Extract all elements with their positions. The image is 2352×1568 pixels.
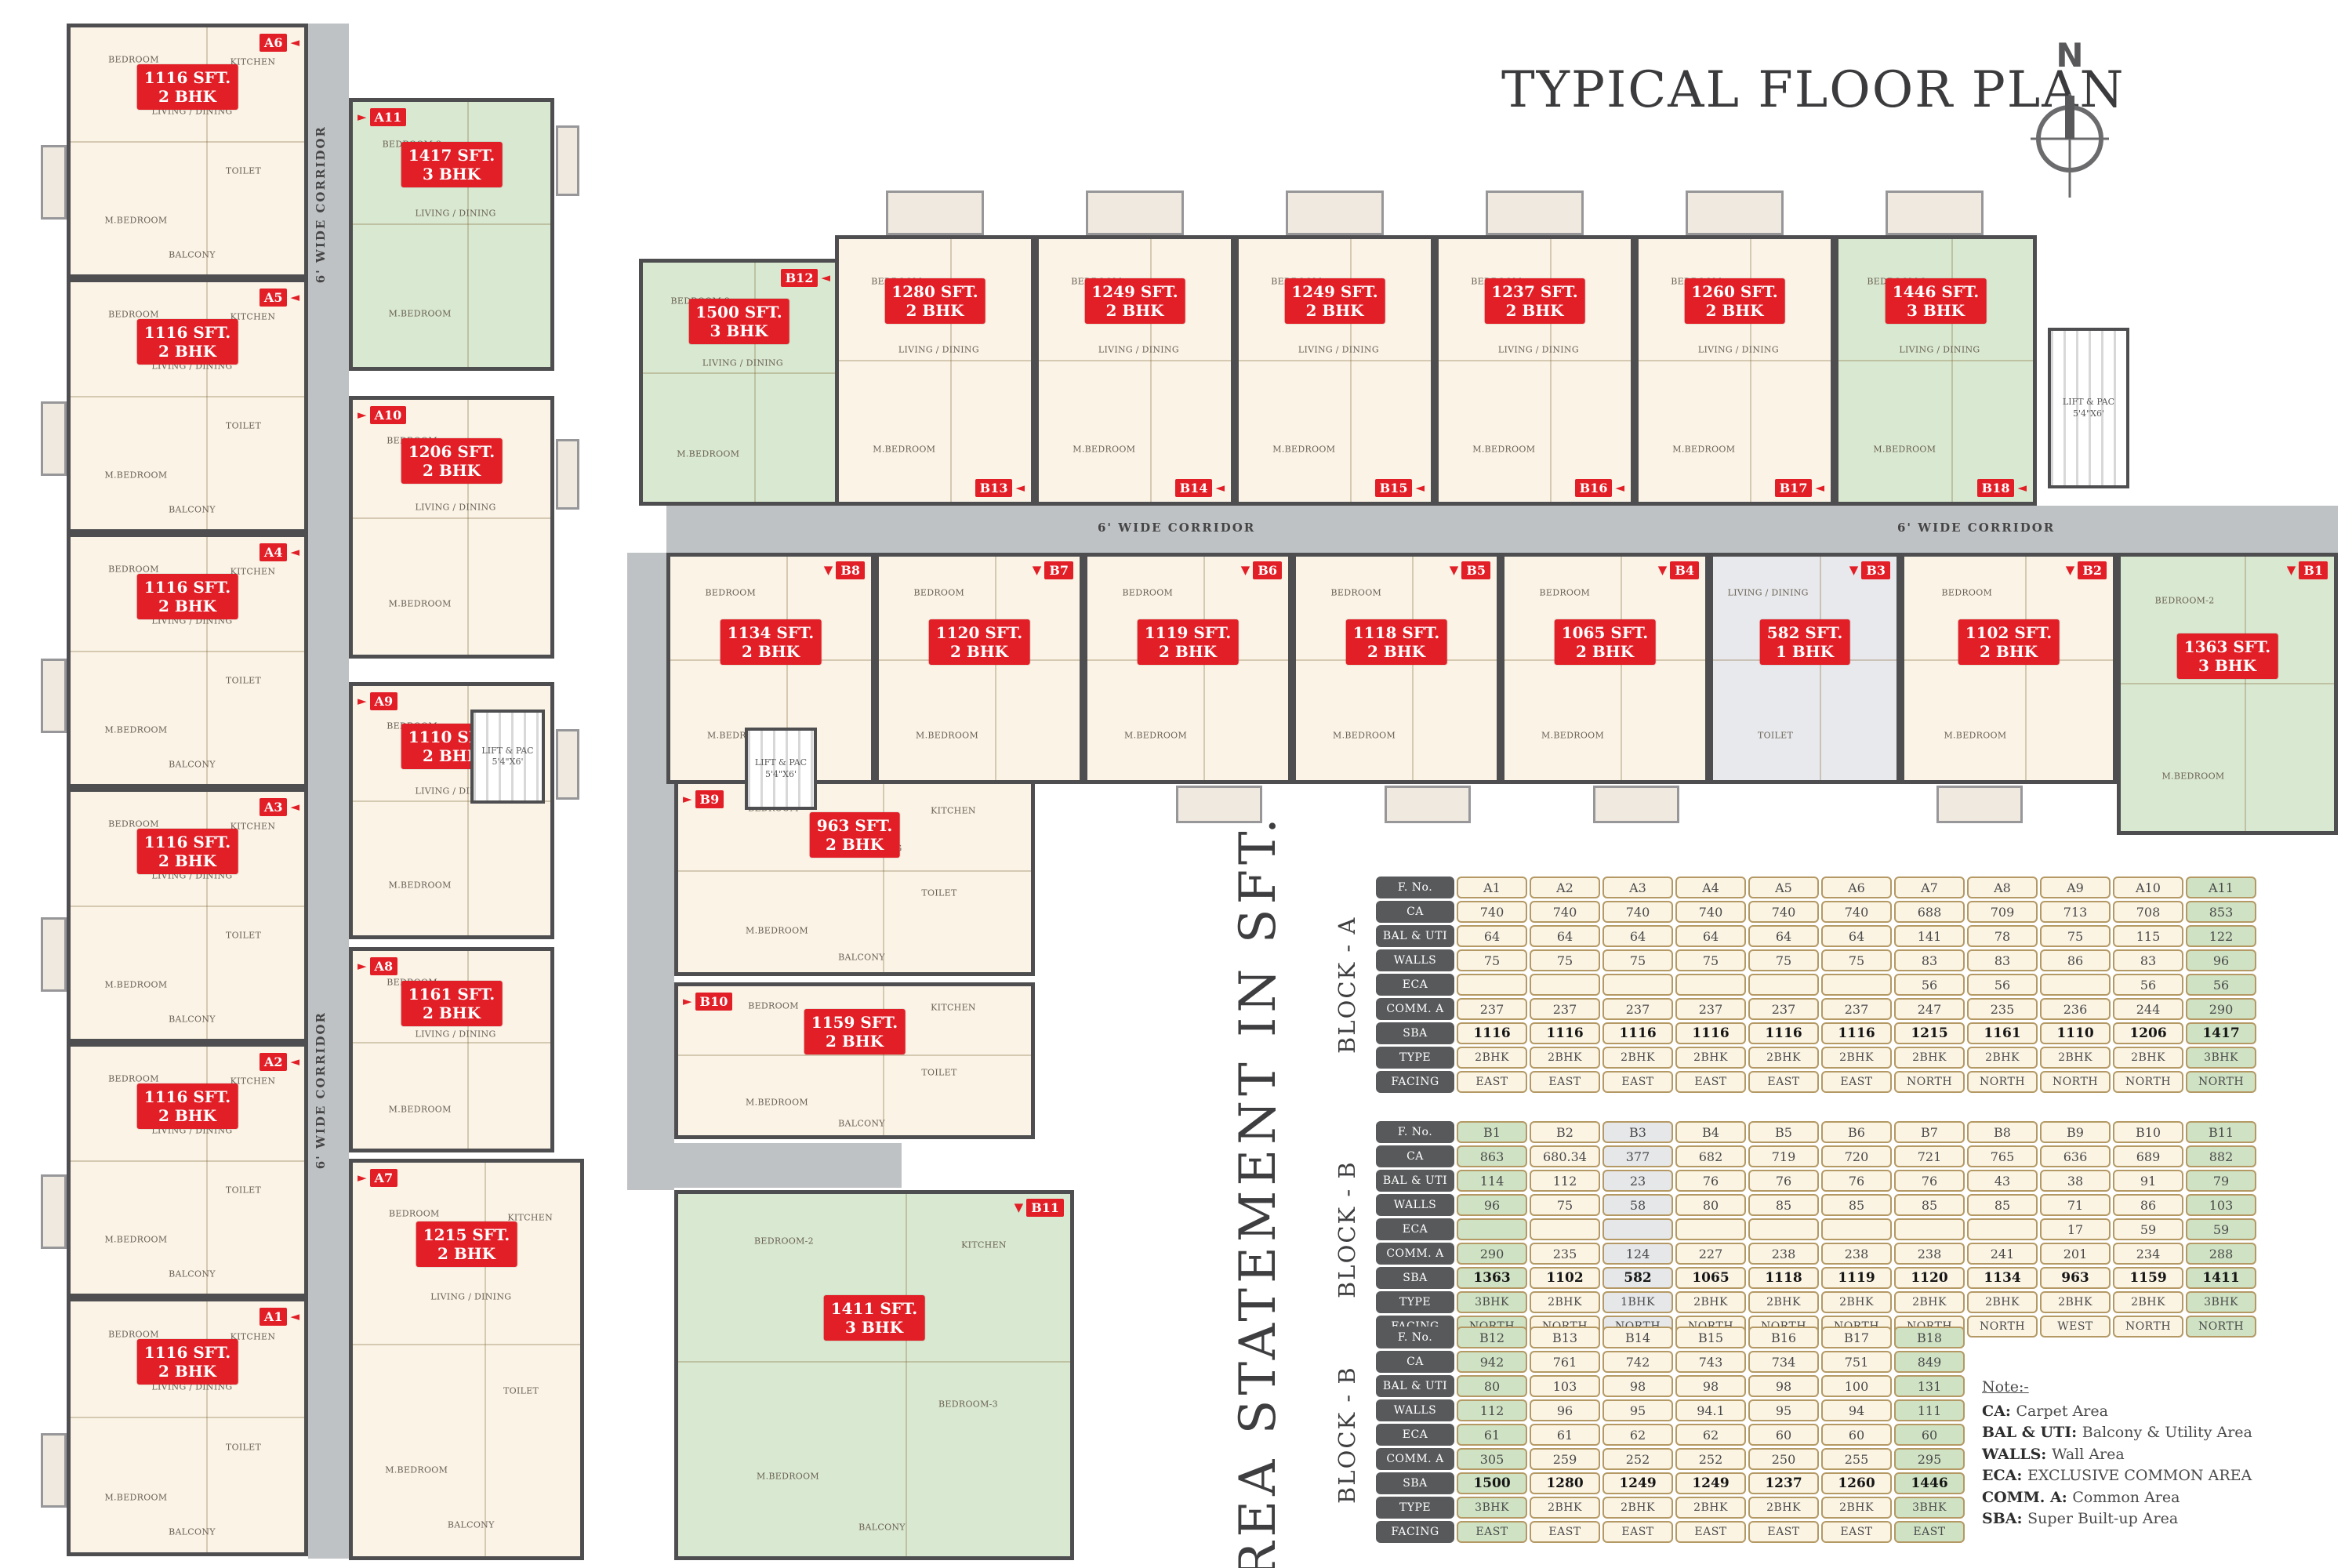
table-cell: 234	[2113, 1243, 2183, 1265]
table-cell: 1159	[2113, 1267, 2183, 1289]
unit-B10: 1159 SFT.2 BHK►B10BEDROOMLIVING / DINING…	[674, 982, 1035, 1139]
table-cell: 80	[1457, 1375, 1527, 1397]
table-cell: 86	[2040, 949, 2111, 971]
room-label: M.BEDROOM	[2161, 771, 2224, 782]
unit-id-chip: A11	[370, 108, 407, 126]
unit-area-badge: 1159 SFT.2 BHK	[804, 1009, 906, 1054]
table-cell: 85	[1821, 1194, 1892, 1216]
room-label: M.BEDROOM	[385, 1465, 448, 1475]
entry-arrow-icon: ◄	[1615, 482, 1624, 494]
unit-marker: B17◄	[1775, 479, 1824, 497]
room-label: KITCHEN	[961, 1240, 1007, 1250]
unit-id-chip: B15	[1375, 479, 1413, 497]
table-cell: 124	[1602, 1243, 1673, 1265]
unit-area-badge: 1119 SFT.2 BHK	[1138, 619, 1239, 665]
unit-marker: A2◄	[260, 1053, 299, 1071]
table-cell: 2BHK	[1821, 1497, 1892, 1519]
table-row: SBA1363110258210651118111911201134963115…	[1376, 1267, 2259, 1289]
table-cell: 247	[1894, 998, 1965, 1020]
table-cell: 201	[2040, 1243, 2111, 1265]
table-cell: EAST	[1602, 1521, 1673, 1543]
table-cell: EAST	[1675, 1521, 1746, 1543]
room-label: LIVING / DINING	[415, 208, 495, 218]
unit-area-badge: 1161 SFT.2 BHK	[401, 981, 503, 1026]
entry-arrow-icon: ▼	[2287, 564, 2296, 576]
table-cell: 1500	[1457, 1472, 1527, 1494]
unit-marker: B13◄	[975, 479, 1025, 497]
area-statement-heading: AREA STATEMENT IN SFT.	[1219, 866, 1298, 1568]
table-cell: 2BHK	[1894, 1047, 1965, 1069]
row-label: CA	[1376, 1351, 1454, 1373]
table-cell: B7	[1894, 1121, 1965, 1143]
unit-marker: ▼B8	[824, 561, 865, 579]
table-cell: B6	[1821, 1121, 1892, 1143]
row-label: FACING	[1376, 1521, 1454, 1543]
room-label: M.BEDROOM	[746, 1098, 808, 1108]
unit-marker: B14◄	[1175, 479, 1225, 497]
unit-marker: ►A8	[358, 957, 397, 975]
table-cell: 709	[1967, 901, 2038, 923]
room-label: LIVING / DINING	[1899, 344, 1980, 354]
unit-marker: ►A11	[358, 108, 406, 126]
table-cell: 75	[2040, 925, 2111, 947]
table-cell	[1675, 1218, 1746, 1240]
unit-B13: 1280 SFT.2 BHKB13◄BEDROOMLIVING / DINING…	[835, 235, 1035, 506]
table-cell: 582	[1602, 1267, 1673, 1289]
entry-arrow-icon: ►	[358, 111, 367, 123]
row-label: WALLS	[1376, 949, 1454, 971]
table-cell: 75	[1530, 1194, 1600, 1216]
table-cell: B8	[1967, 1121, 2038, 1143]
room-label: M.BEDROOM	[1873, 445, 1936, 455]
table-cell	[1821, 974, 1892, 996]
table-cell: 708	[2113, 901, 2183, 923]
corridor-label: 6' WIDE CORRIDOR	[314, 1011, 328, 1169]
room-label: TOILET	[226, 420, 261, 430]
row-label: CA	[1376, 1145, 1454, 1167]
table-cell: 636	[2040, 1145, 2111, 1167]
room-label: BEDROOM-2	[2155, 596, 2215, 606]
table-cell: 64	[1457, 925, 1527, 947]
entry-arrow-icon: ◄	[2017, 482, 2027, 494]
table-cell: NORTH	[1967, 1316, 2038, 1338]
table-cell: 75	[1821, 949, 1892, 971]
table-cell: 56	[1967, 974, 2038, 996]
table-cell: A5	[1748, 877, 1819, 898]
table-cell: EAST	[1821, 1521, 1892, 1543]
room-label: BEDROOM	[748, 1000, 799, 1011]
unit-area-badge: 1116 SFT.2 BHK	[137, 319, 238, 365]
unit-area-badge: 1116 SFT.2 BHK	[137, 1083, 238, 1129]
table-cell: 2BHK	[2113, 1047, 2183, 1069]
note-item: SBA: Super Built-up Area	[1982, 1508, 2252, 1530]
table-cell	[1457, 974, 1527, 996]
table-cell	[1748, 974, 1819, 996]
table-cell: 1116	[1821, 1022, 1892, 1044]
table-cell: 2BHK	[1602, 1047, 1673, 1069]
table-cell: 83	[2113, 949, 2183, 971]
table-cell: 111	[1894, 1399, 1965, 1421]
table-cell: EAST	[1457, 1071, 1527, 1093]
table-cell: 1411	[2186, 1267, 2256, 1289]
room-label: M.BEDROOM	[873, 445, 935, 455]
table-cell: 61	[1457, 1424, 1527, 1446]
table-cell: EAST	[1894, 1521, 1965, 1543]
table-cell: 141	[1894, 925, 1965, 947]
block-label-2: BLOCK - B	[1331, 1327, 1363, 1543]
unit-area-badge: 1215 SFT.2 BHK	[416, 1221, 517, 1267]
corridor-label: 6' WIDE CORRIDOR	[1897, 521, 2055, 535]
note-items: CA: Carpet AreaBAL & UTI: Balcony & Util…	[1982, 1401, 2252, 1530]
unit-area-badge: 1260 SFT.2 BHK	[1684, 278, 1785, 324]
table-cell: B17	[1821, 1327, 1892, 1348]
unit-B3: 582 SFT.1 BHK▼B3LIVING / DININGKITCHENTO…	[1709, 553, 1900, 784]
table-cell: 103	[1530, 1375, 1600, 1397]
table-cell: 2BHK	[2040, 1047, 2111, 1069]
entry-arrow-icon: ◄	[290, 546, 299, 558]
unit-B7: 1120 SFT.2 BHK▼B7BEDROOMLIVING / DININGM…	[875, 553, 1083, 784]
table-cell: 688	[1894, 901, 1965, 923]
table-cell	[1748, 1218, 1819, 1240]
table-row: CA942761742743734751849	[1376, 1351, 1967, 1373]
unit-id-chip: A5	[260, 289, 288, 307]
room-label: BALCONY	[838, 952, 885, 962]
table-cell: 2BHK	[1748, 1497, 1819, 1519]
entry-arrow-icon: ►	[358, 695, 367, 707]
room-label: M.BEDROOM	[1472, 445, 1535, 455]
unit-marker: ▼B2	[2066, 561, 2107, 579]
table-cell: 3BHK	[2186, 1047, 2256, 1069]
unit-area-badge: 1206 SFT.2 BHK	[401, 438, 503, 484]
table-cell: 1116	[1748, 1022, 1819, 1044]
unit-A11: 1417 SFT.3 BHK►A11BEDROOM-2LIVING / DINI…	[349, 98, 554, 371]
table-cell: 114	[1457, 1170, 1527, 1192]
note-desc: Super Built-up Area	[2027, 1510, 2178, 1527]
note-item: BAL & UTI: Balcony & Utility Area	[1982, 1422, 2252, 1444]
unit-area-badge: 1446 SFT.3 BHK	[1886, 278, 1987, 324]
note-term: WALLS:	[1982, 1446, 2052, 1463]
room-label: LIVING / DINING	[415, 1029, 495, 1039]
table-cell: 79	[2186, 1170, 2256, 1192]
room-label: TOILET	[226, 165, 261, 176]
room-label: BEDROOM	[108, 1073, 159, 1083]
table-cell: 244	[2113, 998, 2183, 1020]
table-cell: 83	[1967, 949, 2038, 971]
unit-id-chip: B11	[1026, 1199, 1064, 1217]
unit-id-chip: B13	[975, 479, 1013, 497]
table-cell: 1116	[1675, 1022, 1746, 1044]
table-cell: 61	[1530, 1424, 1600, 1446]
entry-arrow-icon: ◄	[290, 37, 299, 49]
room-label: M.BEDROOM	[757, 1472, 819, 1482]
balcony	[1593, 786, 1679, 823]
table-cell: WEST	[2040, 1316, 2111, 1338]
unit-id-chip: B16	[1575, 479, 1613, 497]
row-label: ECA	[1376, 1424, 1454, 1446]
table-cell: 290	[2186, 998, 2256, 1020]
balcony	[886, 191, 984, 235]
row-label: BAL & UTI	[1376, 1170, 1454, 1192]
unit-area-badge: 1237 SFT.2 BHK	[1484, 278, 1585, 324]
table-cell: 3BHK	[1457, 1497, 1527, 1519]
table-cell: 863	[1457, 1145, 1527, 1167]
table-cell: 719	[1748, 1145, 1819, 1167]
table-cell: 1102	[1530, 1267, 1600, 1289]
table-cell: A8	[1967, 877, 2038, 898]
table-cell: 80	[1675, 1194, 1746, 1216]
table-cell: B12	[1457, 1327, 1527, 1348]
table-cell: A6	[1821, 877, 1892, 898]
floor-plan-sheet: 6' WIDE CORRIDOR6' WIDE CORRIDOR6' WIDE …	[0, 0, 2352, 1568]
table-cell: 853	[2186, 901, 2256, 923]
table-cell: EAST	[1530, 1521, 1600, 1543]
unit-id-chip: A7	[370, 1169, 398, 1187]
table-row: F. No.A1A2A3A4A5A6A7A8A9A10A11	[1376, 877, 2259, 898]
unit-id-chip: B3	[1861, 561, 1890, 579]
table-cell: 96	[1457, 1194, 1527, 1216]
table-cell: 1417	[2186, 1022, 2256, 1044]
table-cell	[1457, 1218, 1527, 1240]
note-item: WALLS: Wall Area	[1982, 1444, 2252, 1466]
room-label: BEDROOM	[1122, 587, 1173, 597]
table-cell: 252	[1602, 1448, 1673, 1470]
room-label: BEDROOM	[1941, 587, 1992, 597]
balcony	[41, 145, 67, 220]
unit-B18: 1446 SFT.3 BHKB18◄BEDROOM-2LIVING / DINI…	[1835, 235, 2037, 506]
room-label: BALCONY	[169, 759, 216, 769]
entry-arrow-icon: ▼	[2066, 564, 2075, 576]
table-cell: 761	[1530, 1351, 1600, 1373]
table-row: WALLS96755880858585857186103	[1376, 1194, 2259, 1216]
unit-area-badge: 1411 SFT.3 BHK	[824, 1295, 925, 1341]
unit-B11: 1411 SFT.3 BHK▼B11BEDROOM-2LIVING / DINI…	[674, 1190, 1074, 1560]
unit-id-chip: B12	[781, 269, 818, 287]
table-cell: 689	[2113, 1145, 2183, 1167]
unit-marker: B15◄	[1375, 479, 1425, 497]
table-row: BAL & UTI114112237676767643389179	[1376, 1170, 2259, 1192]
table-cell: B3	[1602, 1121, 1673, 1143]
area-table-0: F. No.A1A2A3A4A5A6A7A8A9A10A11CA74074074…	[1376, 877, 2259, 1095]
table-cell: 237	[1675, 998, 1746, 1020]
room-label: M.BEDROOM	[389, 599, 452, 609]
area-table-1: F. No.B1B2B3B4B5B6B7B8B9B10B11CA863680.3…	[1376, 1121, 2259, 1340]
lift-stairs: LIFT & PAC5'4"X6'	[745, 728, 817, 810]
room-label: M.BEDROOM	[746, 926, 808, 936]
table-cell: 2BHK	[1967, 1291, 2038, 1313]
row-label: BAL & UTI	[1376, 1375, 1454, 1397]
unit-A10: 1206 SFT.2 BHK►A10BEDROOMLIVING / DINING…	[349, 396, 554, 659]
unit-A4: 1116 SFT.2 BHKA4◄BEDROOMLIVING / DININGK…	[67, 533, 308, 788]
room-label: M.BEDROOM	[677, 449, 739, 459]
balcony	[41, 917, 67, 992]
unit-marker: ▼B11	[1014, 1199, 1064, 1217]
table-cell: B15	[1675, 1327, 1746, 1348]
unit-B2: 1102 SFT.2 BHK▼B2BEDROOMLIVING / DININGM…	[1900, 553, 2117, 784]
table-cell: 377	[1602, 1145, 1673, 1167]
table-cell: 76	[1675, 1170, 1746, 1192]
table-cell: 2BHK	[1530, 1497, 1600, 1519]
table-row: WALLS7575757575758383868396	[1376, 949, 2259, 971]
note-legend: Note:- CA: Carpet AreaBAL & UTI: Balcony…	[1982, 1377, 2252, 1530]
table-cell: 1118	[1748, 1267, 1819, 1289]
unit-marker: ►A7	[358, 1169, 397, 1187]
table-cell: 100	[1821, 1375, 1892, 1397]
room-label: BALCONY	[448, 1519, 495, 1530]
note-desc: Balcony & Utility Area	[2082, 1424, 2252, 1441]
table-cell: 112	[1457, 1399, 1527, 1421]
table-cell: 94.1	[1675, 1399, 1746, 1421]
table-cell: EAST	[1457, 1521, 1527, 1543]
table-cell: EAST	[1748, 1071, 1819, 1093]
room-label: BALCONY	[169, 249, 216, 260]
north-compass: N	[2027, 39, 2113, 209]
table-cell: 64	[1602, 925, 1673, 947]
table-cell: 98	[1748, 1375, 1819, 1397]
room-label: BEDROOM	[705, 587, 756, 597]
table-cell: 3BHK	[2186, 1291, 2256, 1313]
table-cell: 56	[2186, 974, 2256, 996]
unit-id-chip: A1	[260, 1308, 288, 1326]
unit-id-chip: B5	[1461, 561, 1490, 579]
room-label: M.BEDROOM	[389, 880, 452, 891]
unit-area-badge: 1417 SFT.3 BHK	[401, 142, 503, 187]
room-label: LIVING / DINING	[1698, 344, 1779, 354]
row-label: TYPE	[1376, 1497, 1454, 1519]
table-cell: 2BHK	[1602, 1497, 1673, 1519]
table-cell: 740	[1748, 901, 1819, 923]
note-desc: Wall Area	[2052, 1446, 2125, 1463]
entry-arrow-icon: ◄	[1815, 482, 1824, 494]
room-label: BALCONY	[169, 1269, 216, 1279]
note-desc: Carpet Area	[2016, 1403, 2108, 1420]
unit-area-badge: 1120 SFT.2 BHK	[929, 619, 1030, 665]
room-label: TOILET	[921, 888, 956, 898]
note-term: BAL & UTI:	[1982, 1424, 2082, 1441]
unit-B1: 1363 SFT.3 BHK▼B1BEDROOM-2LIVING / DININ…	[2117, 553, 2338, 835]
unit-id-chip: B2	[2078, 561, 2107, 579]
table-cell: NORTH	[2186, 1316, 2256, 1338]
table-cell: 23	[1602, 1170, 1673, 1192]
table-cell: NORTH	[2113, 1071, 2183, 1093]
table-cell: 237	[1457, 998, 1527, 1020]
table-cell: 98	[1602, 1375, 1673, 1397]
unit-B5: 1118 SFT.2 BHK▼B5BEDROOMLIVING / DININGM…	[1292, 553, 1501, 784]
table-cell: 3BHK	[1457, 1291, 1527, 1313]
north-label: N	[2027, 39, 2113, 72]
note-item: CA: Carpet Area	[1982, 1401, 2252, 1423]
table-cell: B14	[1602, 1327, 1673, 1348]
table-row: ECA175959	[1376, 1218, 2259, 1240]
unit-area-badge: 1280 SFT.2 BHK	[884, 278, 985, 324]
table-cell: 882	[2186, 1145, 2256, 1167]
table-cell: 2BHK	[1967, 1047, 2038, 1069]
table-cell: 963	[2040, 1267, 2111, 1289]
row-label: COMM. A	[1376, 998, 1454, 1020]
table-cell: 743	[1675, 1351, 1746, 1373]
unit-B16: 1237 SFT.2 BHKB16◄BEDROOMLIVING / DINING…	[1435, 235, 1635, 506]
entry-arrow-icon: ▼	[824, 564, 833, 576]
unit-id-chip: B14	[1175, 479, 1213, 497]
balcony	[41, 659, 67, 733]
unit-marker: A6◄	[260, 34, 299, 52]
row-label: TYPE	[1376, 1291, 1454, 1313]
table-row: WALLS112969594.19594111	[1376, 1399, 1967, 1421]
table-cell: 38	[2040, 1170, 2111, 1192]
entry-arrow-icon: ▼	[1014, 1202, 1024, 1214]
table-cell: EAST	[1748, 1521, 1819, 1543]
room-label: BEDROOM	[108, 818, 159, 829]
table-cell: 1260	[1821, 1472, 1892, 1494]
table-cell: EAST	[1675, 1071, 1746, 1093]
balcony	[1686, 191, 1784, 235]
table-cell: 237	[1602, 998, 1673, 1020]
unit-area-badge: 1102 SFT.2 BHK	[1958, 619, 2060, 665]
table-cell: 238	[1821, 1243, 1892, 1265]
table-cell: 75	[1602, 949, 1673, 971]
unit-id-chip: B10	[695, 993, 733, 1011]
table-cell: 682	[1675, 1145, 1746, 1167]
room-label: LIVING / DINING	[1098, 344, 1179, 354]
table-cell: 62	[1675, 1424, 1746, 1446]
row-label: SBA	[1376, 1267, 1454, 1289]
table-cell: 237	[1530, 998, 1600, 1020]
room-label: M.BEDROOM	[389, 309, 452, 319]
table-cell: 62	[1602, 1424, 1673, 1446]
unit-A1: 1116 SFT.2 BHKA1◄BEDROOMLIVING / DININGK…	[67, 1298, 308, 1556]
unit-area-badge: 1249 SFT.2 BHK	[1284, 278, 1385, 324]
row-label: SBA	[1376, 1472, 1454, 1494]
unit-B14: 1249 SFT.2 BHKB14◄BEDROOMLIVING / DINING…	[1035, 235, 1235, 506]
table-cell: 740	[1457, 901, 1527, 923]
room-label: M.BEDROOM	[1124, 731, 1187, 741]
unit-id-chip: A10	[370, 406, 407, 424]
note-term: COMM. A:	[1982, 1489, 2072, 1506]
room-label: TOILET	[503, 1386, 539, 1396]
table-cell: B9	[2040, 1121, 2111, 1143]
table-cell: 1116	[1602, 1022, 1673, 1044]
table-cell: 2BHK	[1530, 1291, 1600, 1313]
unit-B9: 963 SFT.2 BHK►B9BEDROOMLIVING / DININGKI…	[674, 780, 1035, 976]
row-label: WALLS	[1376, 1194, 1454, 1216]
unit-area-badge: 1116 SFT.2 BHK	[137, 64, 238, 110]
table-cell: B10	[2113, 1121, 2183, 1143]
note-term: SBA:	[1982, 1510, 2027, 1527]
table-cell: 60	[1748, 1424, 1819, 1446]
table-row: TYPE2BHK2BHK2BHK2BHK2BHK2BHK2BHK2BHK2BHK…	[1376, 1047, 2259, 1069]
note-title: Note:-	[1982, 1377, 2252, 1399]
unit-id-chip: A8	[370, 957, 398, 975]
table-cell: 78	[1967, 925, 2038, 947]
balcony	[1286, 191, 1384, 235]
table-row: SBA1500128012491249123712601446	[1376, 1472, 1967, 1494]
unit-marker: ▼B1	[2287, 561, 2328, 579]
unit-marker: ▼B4	[1658, 561, 1699, 579]
unit-id-chip: B6	[1253, 561, 1282, 579]
unit-id-chip: B8	[836, 561, 865, 579]
table-cell: 1119	[1821, 1267, 1892, 1289]
table-cell: 2BHK	[1675, 1497, 1746, 1519]
unit-B12: 1500 SFT.3 BHKB12◄BEDROOM-2LIVING / DINI…	[639, 259, 839, 506]
note-desc: Common Area	[2072, 1489, 2180, 1506]
unit-marker: A3◄	[260, 798, 299, 816]
table-cell: 236	[2040, 998, 2111, 1020]
row-label: F. No.	[1376, 1121, 1454, 1143]
table-cell: EAST	[1602, 1071, 1673, 1093]
table-cell: 1134	[1967, 1267, 2038, 1289]
table-cell: 1249	[1675, 1472, 1746, 1494]
table-cell: 849	[1894, 1351, 1965, 1373]
table-cell: 91	[2113, 1170, 2183, 1192]
